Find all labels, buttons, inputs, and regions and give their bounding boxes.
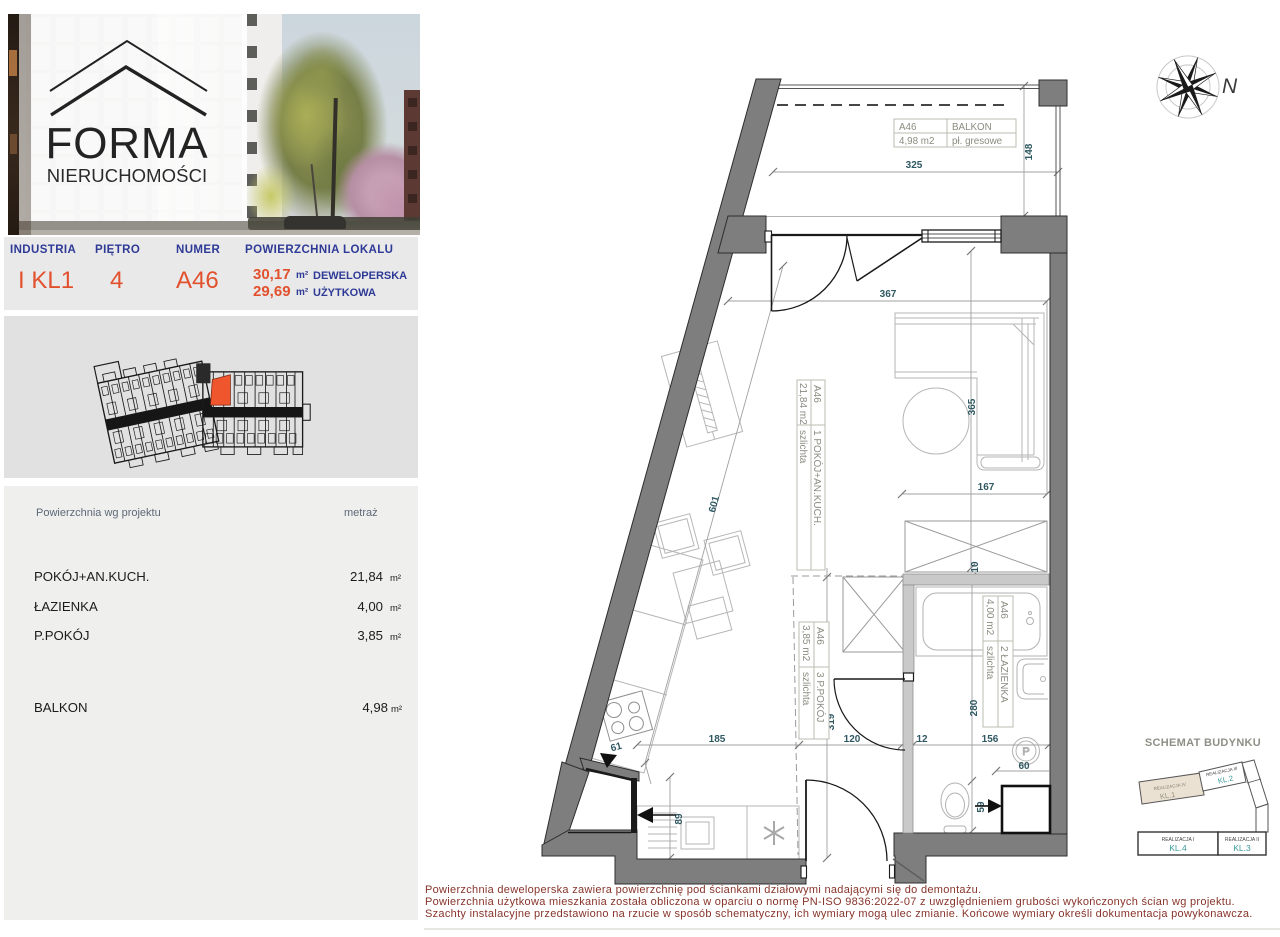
svg-text:m²: m² [390,632,401,643]
svg-text:A46: A46 [998,601,1009,619]
svg-text:NIERUCHOMOŚCI: NIERUCHOMOŚCI [47,165,208,186]
svg-text:12: 12 [916,734,928,745]
svg-text:FORMA: FORMA [46,119,209,168]
svg-text:A46: A46 [899,122,917,133]
svg-text:metraż: metraż [344,507,378,519]
svg-text:1 POKÓJ+AN.KUCH.: 1 POKÓJ+AN.KUCH. [811,430,824,526]
svg-text:156: 156 [982,734,999,745]
svg-text:167: 167 [978,482,995,493]
svg-text:N: N [1222,75,1238,98]
svg-text:4,98 m2: 4,98 m2 [899,136,934,147]
svg-text:PIĘTRO: PIĘTRO [95,244,140,256]
svg-text:A46: A46 [176,267,219,294]
svg-text:BALKON: BALKON [952,122,992,133]
svg-text:61: 61 [610,741,624,755]
svg-text:325: 325 [906,160,923,171]
svg-text:m²: m² [390,603,401,614]
svg-text:120: 120 [844,734,861,745]
svg-text:m²: m² [296,270,309,281]
svg-text:m²: m² [391,704,402,715]
svg-text:ŁAZIENKA: ŁAZIENKA [34,599,98,614]
svg-text:3,85 m2: 3,85 m2 [800,625,811,662]
svg-text:KL.4: KL.4 [1169,843,1187,853]
svg-text:Szachty instalacyjne przedstaw: Szachty instalacyjne przedstawiono na rz… [425,908,1253,920]
svg-text:szlichta: szlichta [797,430,808,464]
svg-text:10: 10 [970,561,981,573]
svg-text:367: 367 [880,289,897,300]
svg-text:60: 60 [1018,761,1030,772]
svg-text:P.POKÓJ: P.POKÓJ [34,628,89,643]
svg-text:POKÓJ+AN.KUCH.: POKÓJ+AN.KUCH. [34,569,149,584]
svg-text:3,85: 3,85 [357,628,383,643]
svg-text:2 ŁAZIENKA: 2 ŁAZIENKA [998,646,1009,703]
svg-text:DEWELOPERSKA: DEWELOPERSKA [313,270,407,282]
svg-text:KL.3: KL.3 [1233,843,1251,853]
svg-text:szlichta: szlichta [800,672,811,706]
svg-text:21,84: 21,84 [350,569,383,584]
svg-text:SCHEMAT BUDYNKU: SCHEMAT BUDYNKU [1145,737,1261,749]
svg-text:185: 185 [709,734,726,745]
svg-text:INDUSTRIA: INDUSTRIA [10,244,76,256]
svg-text:POWIERZCHNIA LOKALU: POWIERZCHNIA LOKALU [245,244,393,256]
svg-text:365: 365 [967,398,978,415]
svg-text:4: 4 [110,267,123,294]
svg-text:4,98: 4,98 [362,700,388,715]
svg-text:A46: A46 [811,385,822,403]
svg-text:3 P.POKÓJ: 3 P.POKÓJ [814,672,827,722]
svg-text:I KL1: I KL1 [18,267,74,294]
svg-text:29,69: 29,69 [253,283,291,300]
svg-text:A46: A46 [814,627,825,645]
svg-text:4,00 m2: 4,00 m2 [984,599,995,636]
svg-text:Powierzchnia deweloperska zawi: Powierzchnia deweloperska zawiera powier… [425,884,981,896]
svg-text:pł. gresowe: pł. gresowe [952,136,1003,147]
svg-text:m²: m² [296,287,309,298]
svg-text:m²: m² [390,573,401,584]
svg-text:UŻYTKOWA: UŻYTKOWA [313,286,376,299]
svg-text:601: 601 [707,494,722,513]
svg-text:BALKON: BALKON [34,700,88,715]
svg-text:21,84 m2: 21,84 m2 [797,383,808,425]
svg-text:4,00: 4,00 [357,599,383,614]
svg-text:280: 280 [969,699,980,716]
svg-text:P: P [1022,746,1029,758]
svg-text:30,17: 30,17 [253,266,291,283]
svg-text:NUMER: NUMER [176,244,220,256]
svg-text:szlichta: szlichta [984,646,995,680]
svg-text:Powierzchnia użytkowa mieszkan: Powierzchnia użytkowa mieszkania została… [425,896,1235,908]
svg-text:Powierzchnia wg projektu: Powierzchnia wg projektu [36,507,161,519]
svg-text:148: 148 [1024,143,1035,160]
